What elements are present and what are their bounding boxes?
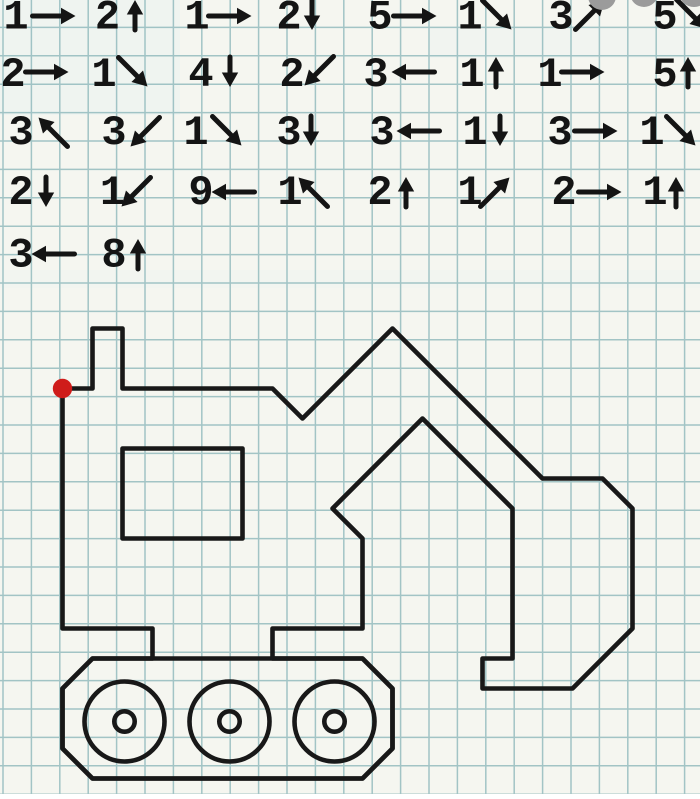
- svg-text:5: 5: [652, 51, 677, 99]
- svg-text:1: 1: [183, 109, 208, 157]
- svg-text:2: 2: [279, 51, 304, 99]
- svg-text:5: 5: [367, 0, 392, 42]
- svg-text:1: 1: [639, 109, 664, 157]
- svg-text:1: 1: [457, 0, 482, 42]
- svg-text:1: 1: [277, 169, 302, 217]
- svg-text:4: 4: [188, 51, 213, 99]
- svg-text:9: 9: [188, 169, 213, 217]
- svg-text:1: 1: [3, 0, 28, 42]
- svg-text:3: 3: [369, 109, 394, 157]
- svg-text:2: 2: [367, 169, 392, 217]
- svg-text:1: 1: [100, 169, 125, 217]
- svg-text:1: 1: [537, 51, 562, 99]
- svg-text:1: 1: [184, 0, 209, 42]
- svg-text:3: 3: [548, 0, 573, 42]
- svg-text:2: 2: [8, 169, 33, 217]
- svg-text:2: 2: [0, 51, 25, 99]
- svg-text:3: 3: [547, 109, 572, 157]
- svg-text:1: 1: [642, 169, 667, 217]
- svg-text:1: 1: [459, 51, 484, 99]
- svg-text:3: 3: [276, 109, 301, 157]
- svg-text:3: 3: [363, 51, 388, 99]
- svg-text:8: 8: [101, 232, 126, 280]
- svg-text:1: 1: [462, 109, 487, 157]
- svg-text:3: 3: [8, 232, 33, 280]
- svg-text:2: 2: [551, 169, 576, 217]
- svg-text:1: 1: [91, 51, 116, 99]
- svg-text:2: 2: [276, 0, 301, 42]
- svg-text:3: 3: [8, 109, 33, 157]
- svg-text:1: 1: [457, 169, 482, 217]
- svg-text:5: 5: [652, 0, 677, 42]
- svg-text:3: 3: [101, 109, 126, 157]
- svg-text:2: 2: [95, 0, 120, 42]
